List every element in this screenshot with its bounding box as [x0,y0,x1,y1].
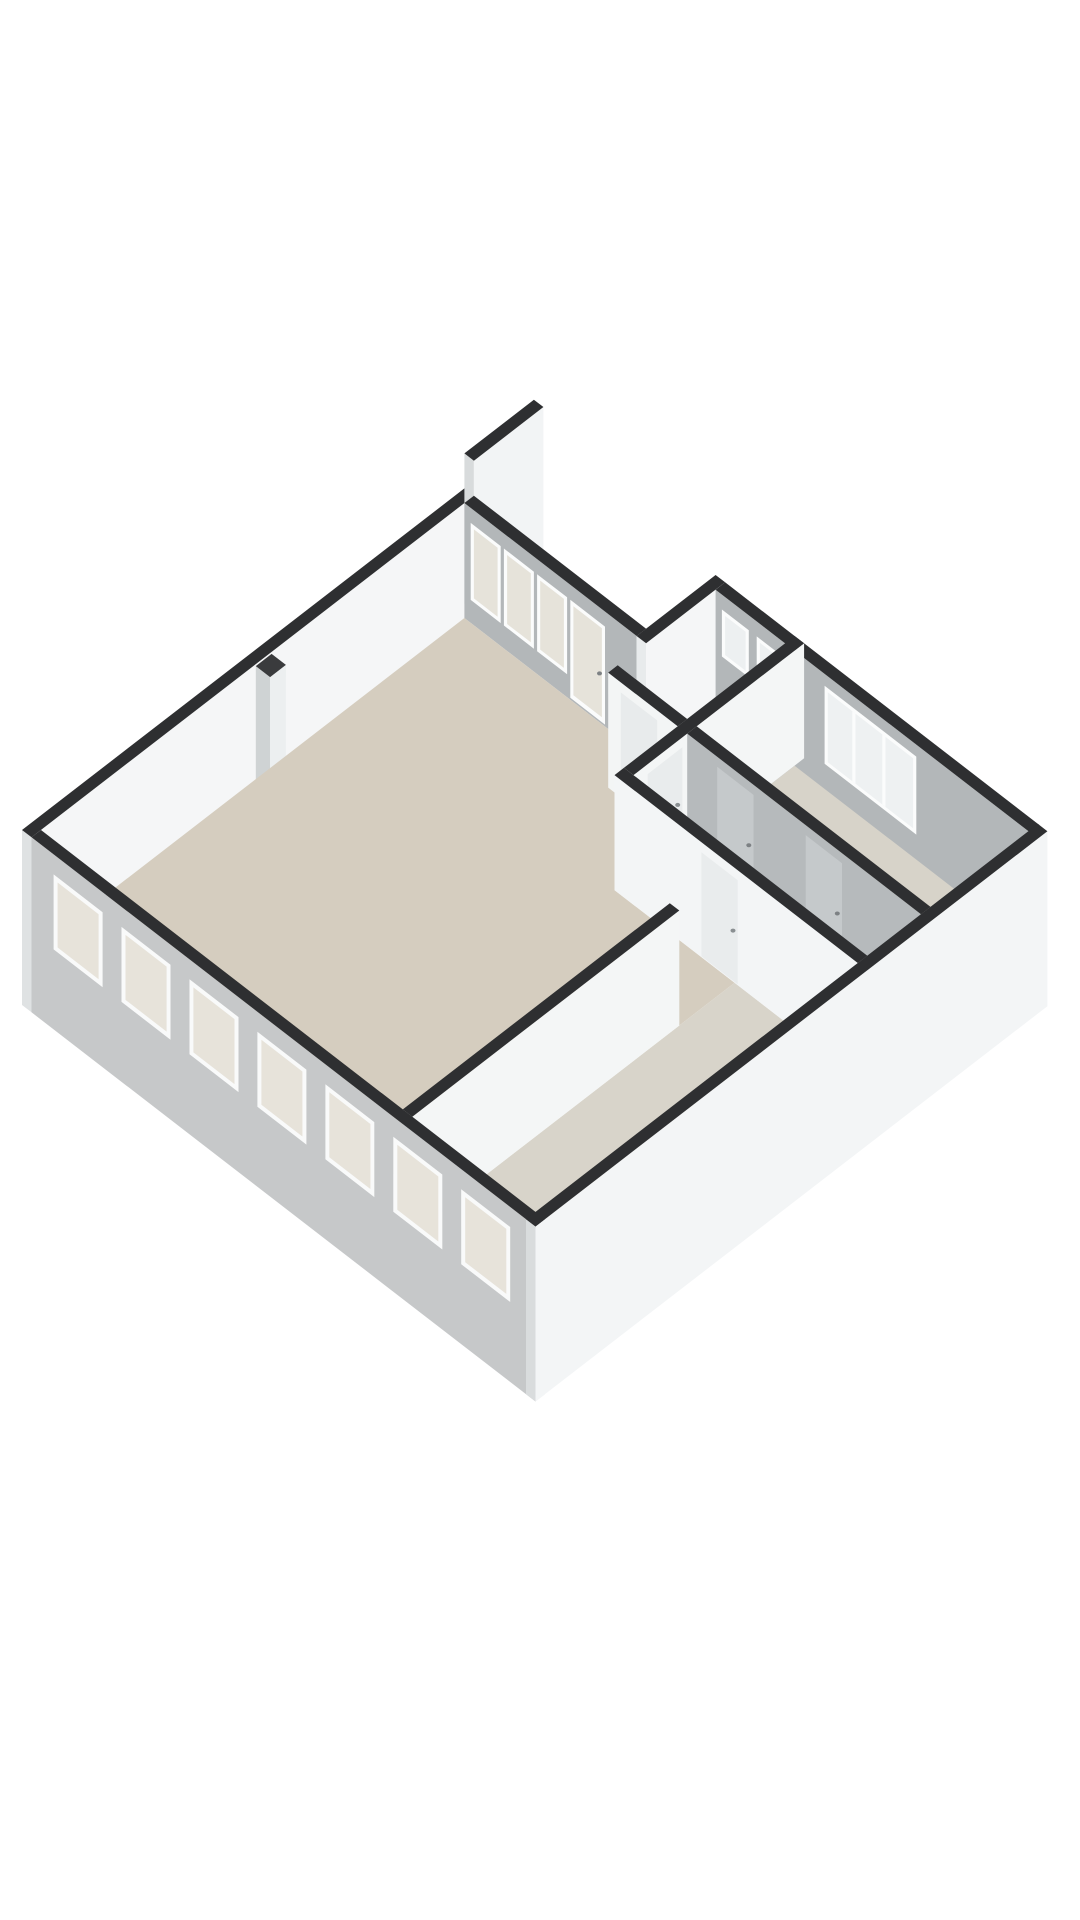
door-handle [597,671,602,675]
door-handle [746,843,751,847]
floorplan-canvas [0,0,1080,1920]
floorplan-page [0,0,1080,1920]
floorplan-geometry [22,400,1047,1402]
wall-southeast-exterior-face-sw [526,1219,536,1401]
window-mullion [852,711,855,783]
door-handle [731,929,736,933]
wall-northwest-exterior-face-sw [22,830,32,1012]
door-handle [675,803,680,807]
window-mullion [882,734,885,806]
door-handle [835,912,840,916]
